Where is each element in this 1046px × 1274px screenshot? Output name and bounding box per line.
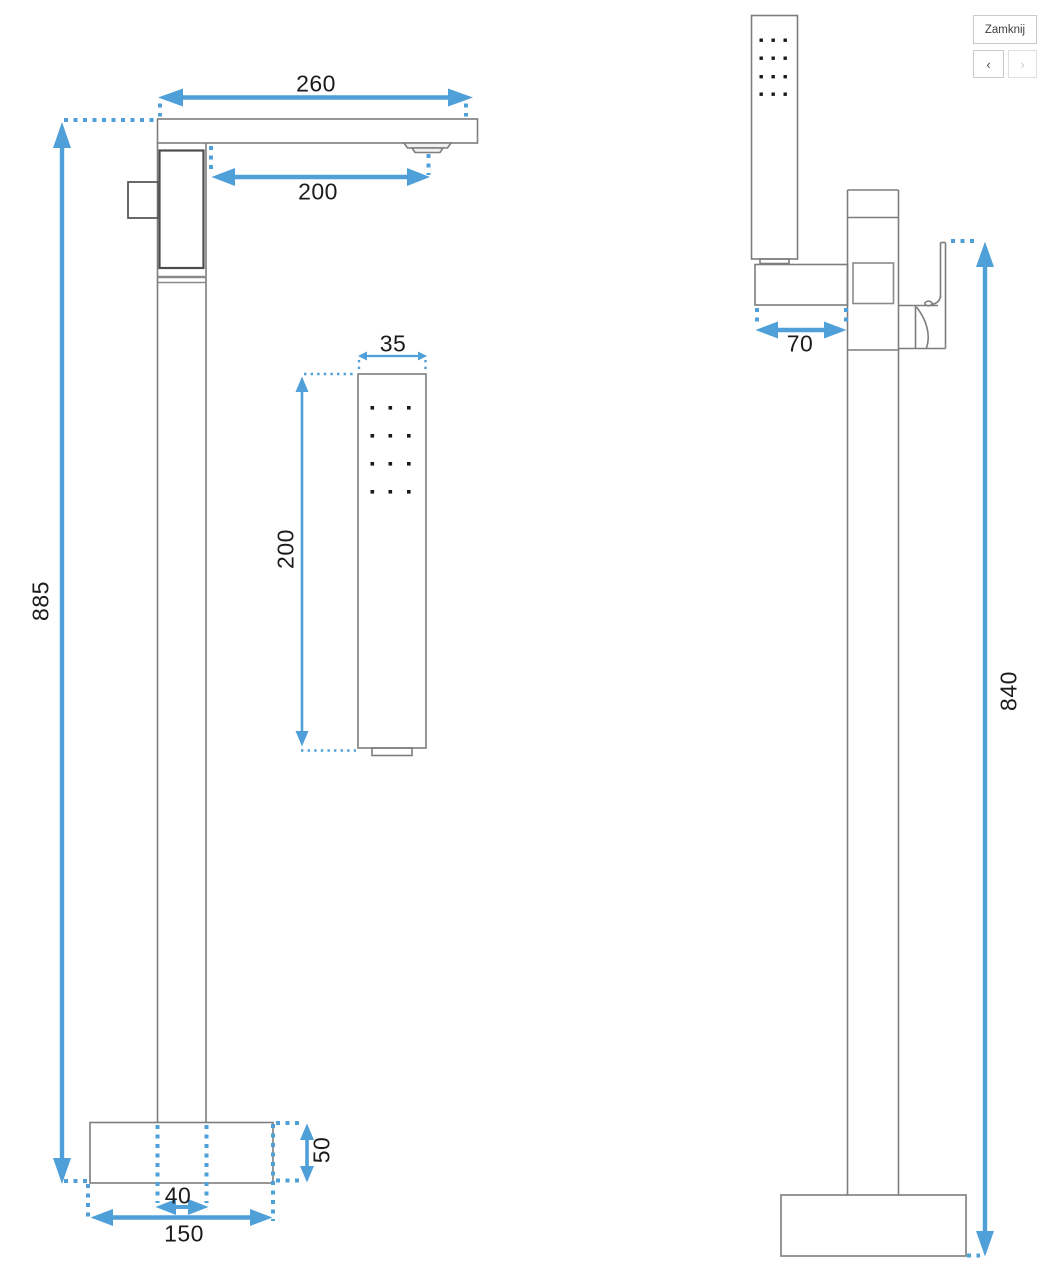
technical-drawing: [0, 0, 1046, 1274]
valve-body: [160, 151, 204, 269]
dim-label-shower-width: 35: [380, 331, 407, 358]
chevron-right-icon: ›: [1020, 57, 1024, 72]
dim-label-spout-width: 260: [296, 71, 336, 98]
shower-holder-bracket: [755, 265, 848, 306]
aerator-tip: [412, 148, 443, 153]
close-button[interactable]: Zamknij: [973, 15, 1037, 44]
dimension-drawing-page: 260 200 885 35 200 50 40 150 70 840 Zamk…: [0, 0, 1046, 1274]
side-view-drawing: [752, 16, 967, 1257]
spout-bar: [158, 119, 478, 143]
prev-button[interactable]: ‹: [973, 50, 1004, 78]
side-handle: [128, 182, 159, 218]
spray-holes: [371, 406, 411, 494]
side-hand-shower: [752, 16, 798, 260]
hand-shower-drawing: [358, 374, 426, 756]
dim-label-column-width: 40: [165, 1183, 192, 1210]
mixer-handle: [899, 243, 946, 349]
valve-plate: [853, 263, 894, 304]
side-base: [781, 1195, 966, 1256]
next-button[interactable]: ›: [1008, 50, 1037, 78]
hand-shower-nozzle: [372, 748, 412, 756]
chevron-left-icon: ‹: [986, 57, 990, 72]
dim-label-handle-height: 840: [996, 671, 1023, 711]
dim-label-total-height: 885: [28, 581, 55, 621]
dim-label-base-height: 50: [309, 1137, 336, 1164]
dim-label-bracket-depth: 70: [787, 331, 814, 358]
dim-arrow-885: [53, 122, 71, 1184]
side-spray-holes: [760, 39, 787, 96]
dim-label-shower-length: 200: [273, 529, 300, 569]
dim-label-base-width: 150: [164, 1221, 204, 1248]
front-view-drawing: [90, 119, 478, 1183]
dim-label-spout-reach: 200: [298, 179, 338, 206]
front-base: [90, 1123, 273, 1184]
side-hand-shower-nozzle: [760, 259, 789, 264]
hand-shower-body: [358, 374, 426, 748]
dim-arrow-840: [976, 242, 994, 1257]
